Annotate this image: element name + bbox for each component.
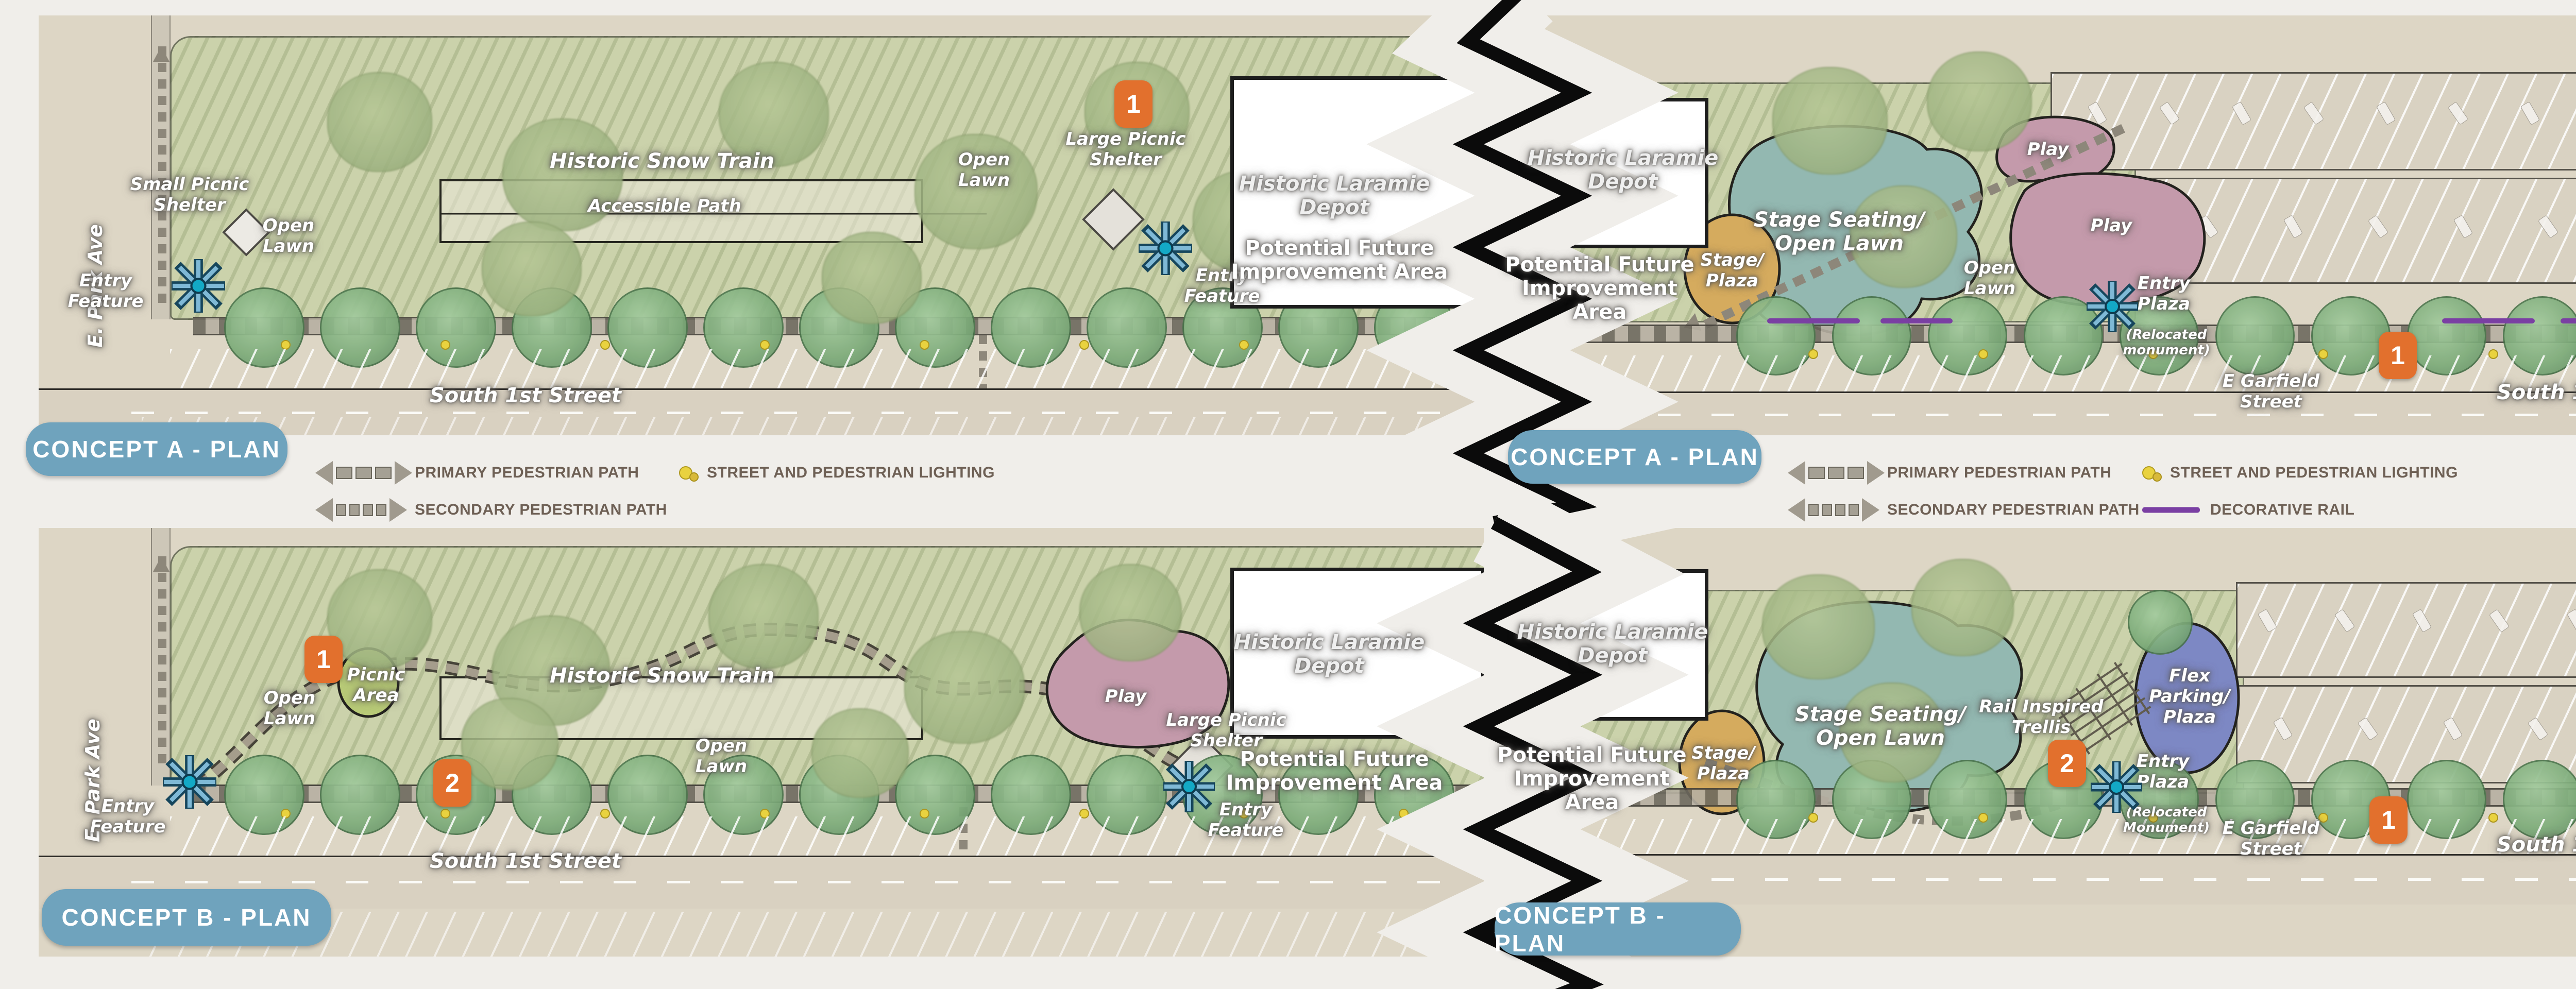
concept-a-right-badge: CONCEPT A - PLAN <box>1508 430 1761 484</box>
label-historic-snow-train: Historic Snow Train <box>550 664 774 688</box>
secondary-path-icon <box>1788 498 1879 522</box>
concept-a-left-badge: CONCEPT A - PLAN <box>26 422 287 476</box>
concept-b-right-badge: CONCEPT B - PLAN <box>1495 902 1741 956</box>
legend-decorative-rail: DECORATIVE RAIL <box>2210 501 2354 519</box>
label-open-lawn: Open Lawn <box>696 736 748 777</box>
arrow-left-icon <box>1788 461 1805 485</box>
label-stage-seating-open-lawn: Stage Seating/ Open Lawn <box>1795 703 1966 750</box>
street-label-e-garfield: E Garfield Street <box>2223 818 2320 859</box>
street-label-e-garfield: E Garfield Street <box>2223 371 2320 412</box>
primary-path-icon <box>315 461 412 485</box>
arrow-left-icon <box>315 498 333 522</box>
label-historic-laramie-depot: Historic Laramie Depot <box>1517 620 1708 668</box>
label-stage-plaza: Stage/ Plaza <box>1700 250 1764 291</box>
concept-plans-sheet: E. Park Ave Small Picnic Shelter Open La… <box>0 0 2576 989</box>
marker-1: 1 <box>2369 796 2408 844</box>
entry-plaza-icon <box>2087 281 2138 332</box>
label-open-lawn: Open Lawn <box>1964 258 2016 299</box>
street-label-south-1st: South 1st Street <box>2497 381 2576 404</box>
street-label-south-1st: South 1st Street <box>2497 833 2576 857</box>
label-historic-laramie-depot: Historic Laramie Depot <box>1234 630 1425 678</box>
street-label-south-1st: South 1st Street <box>430 384 621 407</box>
label-entry-feature: Entry Feature <box>1208 799 1284 841</box>
label-picnic-area: Picnic Area <box>347 664 405 706</box>
label-entry-feature: Entry Feature <box>90 796 166 837</box>
label-entry-plaza: Entry Plaza <box>2137 751 2190 792</box>
lighting-icon <box>2142 464 2162 482</box>
concept-b-left-badge: CONCEPT B - PLAN <box>42 889 331 946</box>
legend-primary-path: PRIMARY PEDESTRIAN PATH <box>1887 464 2111 482</box>
marker-1: 1 <box>2379 332 2417 379</box>
street-label-south-1st: South 1st Street <box>430 849 621 873</box>
label-accessible-path: Accessible Path <box>588 196 741 216</box>
label-play: Play <box>1105 686 1147 707</box>
label-rail-inspired-trellis: Rail Inspired Trellis <box>1979 696 2104 738</box>
secondary-path-icon <box>315 498 407 522</box>
labels-layer: E. Park Ave Small Picnic Shelter Open La… <box>0 0 2576 989</box>
lighting-icon <box>679 464 699 482</box>
marker-1: 1 <box>304 636 343 683</box>
arrow-right-icon <box>1867 461 1885 485</box>
label-historic-laramie-depot: Historic Laramie Depot <box>1239 172 1430 219</box>
label-open-lawn: Open Lawn <box>958 149 1010 191</box>
decorative-rail-icon <box>2142 507 2200 513</box>
label-potential-future-improvement: Potential Future Improvement Area <box>1497 743 1686 814</box>
label-stage-seating-open-lawn: Stage Seating/ Open Lawn <box>1754 208 1925 255</box>
label-play: Play <box>2027 139 2069 160</box>
light-dot-icon <box>689 472 699 482</box>
entry-plaza-icon <box>2091 761 2142 813</box>
label-historic-laramie-depot: Historic Laramie Depot <box>1528 146 1718 194</box>
label-entry-plaza: Entry Plaza <box>2138 273 2191 314</box>
label-historic-snow-train: Historic Snow Train <box>550 149 774 173</box>
label-open-lawn: Open Lawn <box>264 688 316 729</box>
legend-lighting: STREET AND PEDESTRIAN LIGHTING <box>707 464 995 482</box>
label-large-picnic-shelter: Large Picnic Shelter <box>1166 710 1286 751</box>
label-potential-future-improvement: Potential Future Improvement Area <box>1226 747 1443 795</box>
legend-primary-path: PRIMARY PEDESTRIAN PATH <box>415 464 639 482</box>
marker-2: 2 <box>433 759 471 807</box>
primary-path-icon <box>1788 461 1885 485</box>
label-open-lawn: Open Lawn <box>263 215 315 257</box>
arrow-left-icon <box>1788 498 1805 522</box>
rail-line-icon <box>2142 507 2200 513</box>
label-large-picnic-shelter: Large Picnic Shelter <box>1065 129 1185 170</box>
entry-feature-icon <box>1163 761 1215 812</box>
label-small-picnic-shelter: Small Picnic Shelter <box>130 174 249 215</box>
label-potential-future-improvement: Potential Future Improvement Area <box>1505 253 1694 324</box>
legend-lighting: STREET AND PEDESTRIAN LIGHTING <box>2170 464 2458 482</box>
marker-2: 2 <box>2048 740 2086 787</box>
entry-feature-icon <box>163 755 216 809</box>
label-play: Play <box>2091 215 2132 236</box>
entry-feature-icon <box>1139 221 1192 275</box>
legend-secondary-path: SECONDARY PEDESTRIAN PATH <box>415 501 667 519</box>
arrow-left-icon <box>315 461 333 485</box>
label-stage-plaza: Stage/ Plaza <box>1691 743 1755 784</box>
marker-1: 1 <box>1114 80 1153 128</box>
arrow-right-icon <box>1862 498 1879 522</box>
arrow-right-icon <box>389 498 407 522</box>
arrow-right-icon <box>395 461 412 485</box>
label-entry-feature: Entry Feature <box>68 270 144 312</box>
label-flex-parking-plaza: Flex Parking/ Plaza <box>2149 666 2230 727</box>
entry-feature-icon <box>172 259 225 313</box>
label-potential-future-improvement: Potential Future Improvement Area <box>1231 236 1448 284</box>
light-dot-icon <box>2153 472 2162 482</box>
legend-secondary-path: SECONDARY PEDESTRIAN PATH <box>1887 501 2140 519</box>
